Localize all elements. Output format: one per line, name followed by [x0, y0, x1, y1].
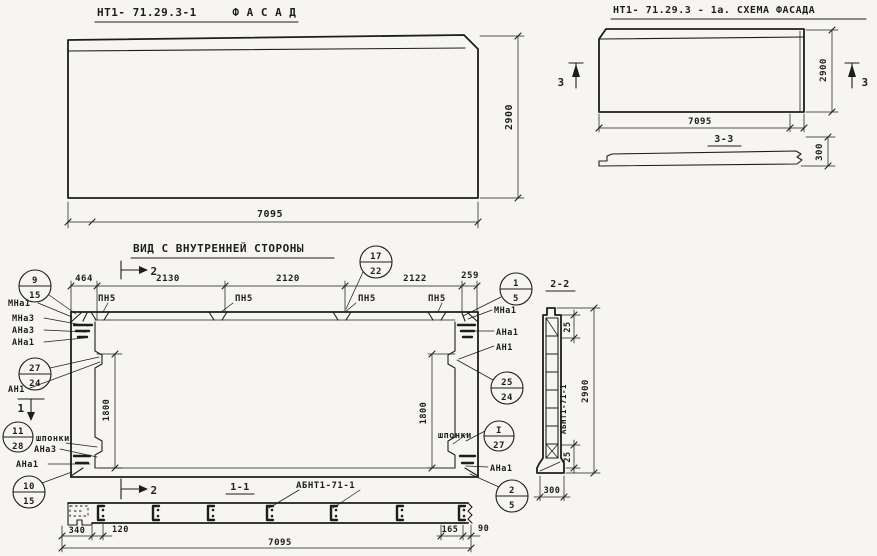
svg-text:АНа1: АНа1 [490, 464, 512, 474]
svg-text:300: 300 [544, 486, 561, 496]
pn5-label-3: ПН5 [358, 294, 376, 304]
svg-text:9: 9 [32, 276, 38, 286]
dim-340: 340 [69, 526, 86, 536]
stirrup [208, 506, 214, 520]
svg-text:АНа1: АНа1 [12, 338, 34, 348]
schema-dim-height: 2900 [806, 27, 838, 115]
mark-circle-I-27: I 27 [466, 421, 514, 451]
stirrup [459, 506, 465, 520]
svg-text:24: 24 [501, 393, 513, 403]
svg-text:5: 5 [509, 501, 515, 511]
mark-circle-10-15: 10 15 [13, 472, 72, 508]
svg-text:МНа1: МНа1 [494, 306, 516, 316]
section-2-2-title: 2-2 [550, 279, 570, 290]
section-1-1-stirrups [98, 506, 465, 520]
schema-title: НТ1- 71.29.3 - 1а. СХЕМА ФАСАДА [613, 5, 815, 16]
svg-text:2: 2 [150, 265, 157, 278]
svg-text:1: 1 [513, 279, 519, 289]
section-2-2-dim-width: 300 [534, 476, 570, 501]
dim-total-7095: 7095 [268, 538, 292, 548]
svg-text:АНа3: АНа3 [12, 326, 34, 336]
inner-section-mark-1: 1 [17, 399, 44, 421]
dim-165: 165 [442, 525, 459, 535]
svg-text:25: 25 [563, 321, 573, 332]
inner-dim-464: 464 [75, 274, 93, 284]
svg-text:АНа1: АНа1 [496, 328, 518, 338]
pn5-label-4: ПН5 [428, 294, 446, 304]
svg-text:2: 2 [509, 486, 515, 496]
dim-120: 120 [112, 525, 129, 535]
facade-dim-width: 7095 [65, 202, 481, 228]
section-1-1: 1-1 АБНТ1-71-1 [59, 481, 489, 552]
svg-text:25: 25 [501, 378, 513, 388]
svg-text:1800: 1800 [102, 399, 112, 421]
inner-dim-2120: 2120 [276, 274, 300, 284]
schema-section-mark-right: 3 [845, 63, 869, 89]
stirrup [267, 506, 273, 520]
svg-text:15: 15 [23, 497, 35, 507]
inner-top-notches [91, 312, 446, 320]
svg-text:МНа1: МНа1 [8, 299, 30, 309]
facade-view: НТ1- 71.29.3-1 Ф А С А Д 7095 2900 [65, 6, 524, 228]
beam-label-1-1: АБНТ1-71-1 [296, 481, 355, 491]
svg-text:22: 22 [370, 267, 382, 277]
inner-anchor-bars [74, 325, 475, 463]
svg-text:I: I [496, 426, 502, 436]
svg-text:15: 15 [29, 291, 41, 301]
inner-panel-outline [71, 312, 478, 477]
mark-circle-27-24: 27 24 [19, 357, 99, 390]
inner-pn-labels: ПН5 ПН5 ПН5 ПН5 [98, 294, 446, 312]
stirrup [331, 506, 337, 520]
inner-dim-1800-right: 1800 [419, 351, 455, 471]
inner-left-stile [95, 322, 102, 468]
section-1-1-title: 1-1 [230, 482, 250, 493]
dim-90: 90 [478, 524, 489, 534]
section-2-2-dim-25-top: 25 [562, 310, 580, 343]
facade-dim-height: 2900 [480, 33, 524, 201]
svg-text:27: 27 [29, 364, 41, 374]
svg-text:1: 1 [17, 402, 24, 415]
inner-dim-1800-left: 1800 [97, 351, 122, 471]
inner-section-mark-2-top: 2 [121, 261, 158, 279]
schema-dim-thickness: 300 [801, 134, 835, 169]
facade-dim-height-text: 2900 [504, 104, 515, 130]
svg-text:АН1: АН1 [496, 343, 513, 353]
technical-drawing: НТ1- 71.29.3-1 Ф А С А Д 7095 2900 НТ1- … [0, 0, 877, 556]
svg-text:17: 17 [370, 252, 382, 262]
svg-text:25: 25 [563, 451, 573, 462]
schema-dim-width: 7095 [596, 114, 807, 132]
beam-label-2-2: АБНТ1-71-1 [559, 384, 568, 434]
mark-circle-11-28: 11 28 [3, 422, 33, 452]
mark-circle-25-24: 25 24 [457, 360, 523, 404]
schema-section-strip [599, 151, 802, 166]
inner-title: ВИД С ВНУТРЕННЕЙ СТОРОНЫ [133, 242, 304, 255]
schema-dim-thickness-text: 300 [815, 143, 825, 161]
schema-section-mark-right-text: 3 [861, 76, 868, 89]
inner-dim-2130: 2130 [156, 274, 180, 284]
svg-text:5: 5 [513, 294, 519, 304]
svg-text:27: 27 [493, 441, 505, 451]
svg-text:10: 10 [23, 482, 35, 492]
facade-dim-width-text: 7095 [257, 209, 283, 220]
section-2-2: 2-2 АБНТ1-71-1 25 [534, 279, 600, 501]
svg-text:АНа1: АНа1 [16, 460, 38, 470]
schema-dim-width-text: 7095 [688, 117, 712, 127]
inner-dim-2122: 2122 [403, 274, 427, 284]
section-1-1-dims: 340 120 165 90 7095 [59, 524, 489, 552]
mark-circle-2-5: 2 5 [470, 474, 528, 512]
schema-view: НТ1- 71.29.3 - 1а. СХЕМА ФАСАДА 3 3 [557, 5, 868, 169]
svg-text:28: 28 [12, 442, 24, 452]
svg-text:МНа3: МНа3 [12, 314, 34, 324]
facade-title: НТ1- 71.29.3-1 Ф А С А Д [97, 6, 296, 19]
svg-text:2: 2 [150, 484, 157, 497]
schema-panel-outline [599, 29, 804, 112]
shponki-right-label: шпонки [438, 431, 472, 441]
stirrup [397, 506, 403, 520]
inner-right-stile [448, 322, 455, 468]
svg-text:2900: 2900 [581, 379, 591, 403]
schema-section-mark-left: 3 [557, 63, 583, 89]
svg-text:АНа3: АНа3 [34, 445, 56, 455]
shponki-left-label: шпонки [36, 434, 70, 444]
svg-text:11: 11 [12, 427, 24, 437]
inner-dim-259: 259 [461, 271, 479, 281]
inner-section-mark-2-bottom: 2 [121, 479, 158, 499]
schema-dim-height-text: 2900 [819, 58, 829, 82]
svg-text:1800: 1800 [419, 402, 429, 424]
inner-view: ВИД С ВНУТРЕННЕЙ СТОРОНЫ 464 2130 2120 2… [3, 242, 532, 512]
schema-section-mark-left-text: 3 [557, 76, 564, 89]
pn5-label-2: ПН5 [235, 294, 253, 304]
facade-panel-outline [68, 35, 478, 198]
svg-text:АН1: АН1 [8, 385, 25, 395]
stirrup [98, 506, 104, 520]
schema-section-view-title: 3-3 [714, 134, 734, 145]
pn5-label-1: ПН5 [98, 294, 116, 304]
stirrup [153, 506, 159, 520]
